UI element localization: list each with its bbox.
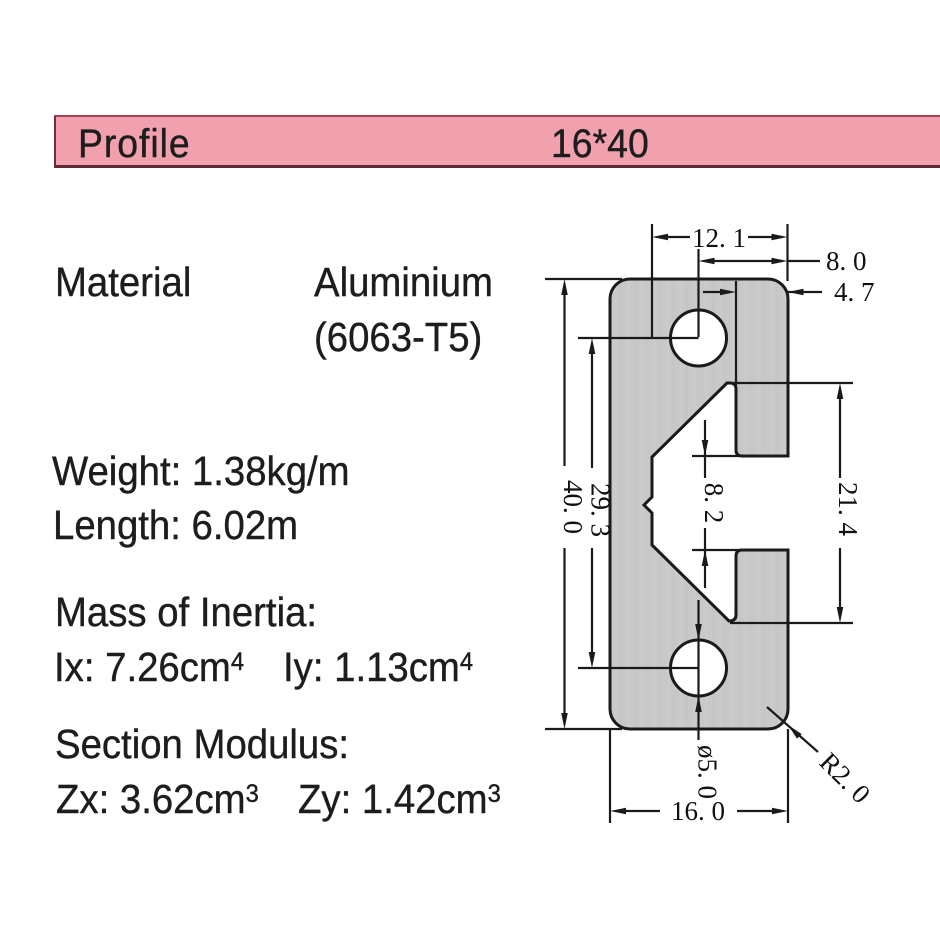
svg-text:12. 1: 12. 1 [692, 223, 746, 253]
svg-text:21. 4: 21. 4 [833, 482, 863, 537]
svg-text:8. 2: 8. 2 [699, 483, 729, 524]
svg-text:29. 3: 29. 3 [586, 483, 616, 537]
svg-text:40. 0: 40. 0 [558, 480, 588, 534]
svg-text:4. 7: 4. 7 [834, 277, 875, 307]
svg-text:16. 0: 16. 0 [671, 796, 725, 826]
svg-text:R2. 0: R2. 0 [814, 747, 877, 810]
svg-text:8. 0: 8. 0 [826, 246, 867, 276]
svg-text:ø5. 0: ø5. 0 [693, 745, 723, 799]
